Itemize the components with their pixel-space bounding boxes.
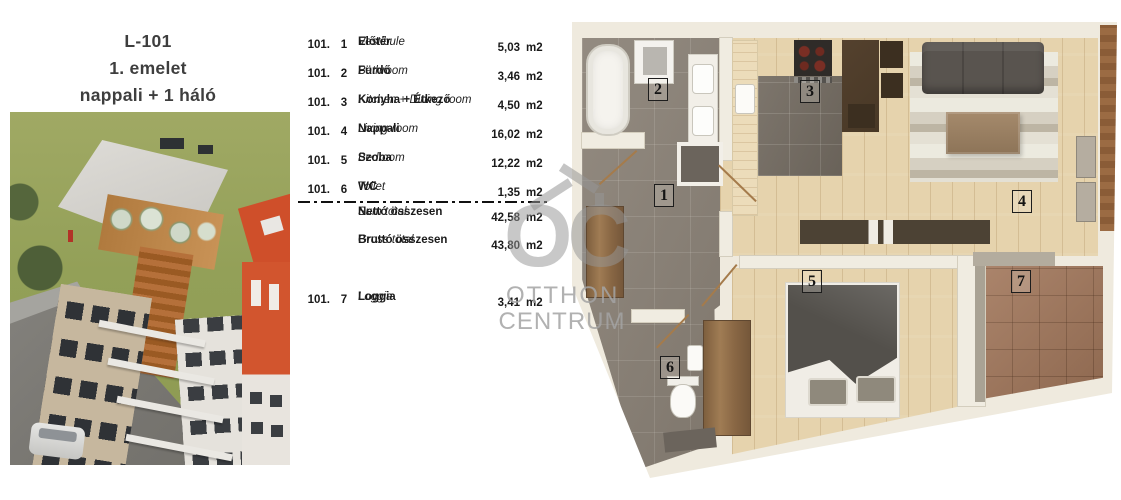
sofa	[922, 42, 1044, 94]
roof-vent	[198, 145, 213, 154]
balcony-door	[1076, 182, 1096, 222]
window	[250, 392, 262, 404]
balcony-door	[1076, 136, 1096, 178]
loggia-floor	[985, 266, 1103, 404]
bathtub	[586, 44, 630, 136]
floor-label: 1. emelet	[34, 55, 262, 82]
wc-sink	[687, 345, 703, 371]
washer-lid	[643, 47, 667, 75]
table-row: 101.2 FürdőBathroom 3,46m2	[298, 65, 550, 93]
room-label-vestibule: 1	[654, 184, 674, 207]
table-row: 101.6 WCToilet 1,35m2	[298, 181, 550, 209]
person-on-terrace	[68, 230, 73, 242]
kitchen-sink	[735, 84, 755, 114]
table-row: 101.5 SzobaBedroom 12,22m2	[298, 152, 550, 180]
wc-mat	[663, 427, 717, 452]
coffee-table	[946, 112, 1020, 154]
room-label-wc: 6	[660, 356, 680, 379]
sink	[692, 106, 714, 136]
window	[271, 425, 283, 437]
room-label-bedroom: 5	[802, 270, 822, 293]
totals-row-gross: Bruttó összesenGross total 43,80m2	[298, 234, 550, 262]
table-row: 101.1 ElőtérVestibule 5,03m2	[298, 36, 550, 64]
sink	[692, 64, 714, 94]
floor-plan: 1 2 3 4 5 6 7	[570, 14, 1121, 492]
pillow	[856, 376, 896, 403]
table-row: 101.4 NappaliLiving-room 16,02m2	[298, 123, 550, 151]
room-area-table: 101.1 ElőtérVestibule 5,03m2 101.2 Fürdő…	[298, 32, 550, 332]
loggia-door-frame	[975, 264, 985, 402]
window	[269, 284, 279, 310]
floorplan-sheet: L-101 1. emelet nappali + 1 háló 101	[0, 0, 1121, 500]
room-label-loggia: 7	[1011, 270, 1031, 293]
wall	[632, 310, 684, 322]
building-photo	[10, 112, 290, 465]
terrace-wood-edge	[1100, 25, 1119, 231]
car-windshield	[38, 428, 77, 443]
loggia-lintel	[973, 252, 1055, 266]
listing-title-block: L-101 1. emelet nappali + 1 háló	[34, 28, 262, 109]
table-row-loggia: 101.7 LoggiaLoggia 3,41m2	[298, 291, 550, 319]
tv-sideboard	[800, 220, 990, 244]
room-label-living: 4	[1012, 190, 1032, 213]
shower-tray	[677, 142, 723, 186]
room-label-bathroom: 2	[648, 78, 668, 101]
roof-vent	[160, 138, 184, 149]
window	[251, 422, 263, 434]
toilet	[670, 384, 696, 418]
hall-wardrobe	[586, 206, 624, 298]
wall	[720, 212, 732, 256]
pillow	[808, 378, 848, 406]
chair	[848, 104, 875, 128]
room-label-kitchen: 3	[800, 80, 820, 103]
parked-car	[28, 422, 85, 460]
bedroom-wardrobe	[703, 320, 751, 436]
totals-divider	[298, 201, 548, 203]
cooktop	[794, 40, 832, 76]
chair	[880, 41, 903, 68]
window	[251, 280, 261, 306]
layout-label: nappali + 1 háló	[34, 82, 262, 109]
wall	[740, 256, 976, 268]
totals-row-net: Nettó összesenSum total 42,58m2	[298, 206, 550, 234]
window	[270, 395, 282, 407]
table-row: 101.3 Konyha + ÉtkezőKitchen + Dining ro…	[298, 94, 550, 122]
chair	[881, 73, 903, 98]
unit-code: L-101	[34, 28, 262, 55]
